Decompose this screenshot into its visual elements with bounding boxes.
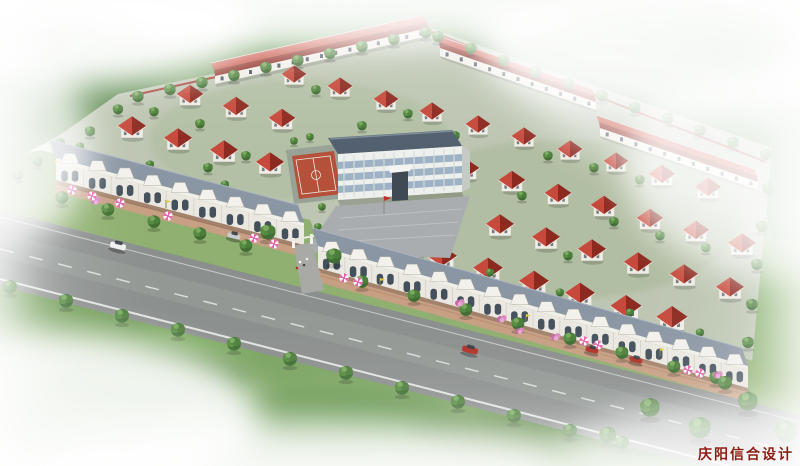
tree [283, 352, 298, 370]
tree [318, 203, 326, 213]
tree [101, 203, 114, 220]
tree [164, 84, 176, 99]
tree [407, 289, 420, 306]
basketball-court [286, 144, 346, 204]
tree [292, 55, 304, 70]
tree [115, 309, 130, 327]
tree [718, 376, 733, 394]
tree [742, 337, 754, 352]
aerial-rendering-stage: 庆阳信合设计 [0, 0, 800, 466]
tree [147, 215, 160, 232]
tree [196, 77, 208, 92]
tree [311, 85, 321, 97]
watermark-text: 庆阳信合设计 [698, 444, 794, 464]
tree [227, 337, 242, 355]
tree [193, 227, 206, 244]
tree [290, 137, 298, 147]
tree [324, 48, 336, 63]
tree [3, 280, 18, 298]
tree [339, 366, 354, 384]
tree [589, 163, 599, 175]
tree [149, 107, 159, 119]
tree [543, 151, 553, 163]
tree [239, 239, 252, 256]
tree [451, 395, 466, 413]
tree [228, 70, 240, 85]
tree [615, 346, 628, 363]
tree [507, 409, 522, 427]
office-building [328, 130, 470, 206]
tree [195, 119, 205, 131]
tree [306, 133, 314, 143]
tree [563, 251, 573, 263]
tree [609, 217, 619, 229]
tree [260, 62, 272, 77]
tree [403, 109, 413, 121]
tree [171, 323, 186, 341]
tree [395, 381, 410, 399]
tree [517, 191, 527, 203]
tree [241, 151, 251, 163]
tree [113, 104, 124, 117]
tree [59, 294, 74, 312]
tree [357, 121, 367, 133]
tree [132, 91, 144, 106]
tree [203, 163, 213, 175]
tree [326, 249, 342, 269]
tree [667, 360, 680, 377]
aerial-rendering [0, 0, 800, 466]
tree [563, 332, 576, 349]
tree [746, 299, 758, 314]
